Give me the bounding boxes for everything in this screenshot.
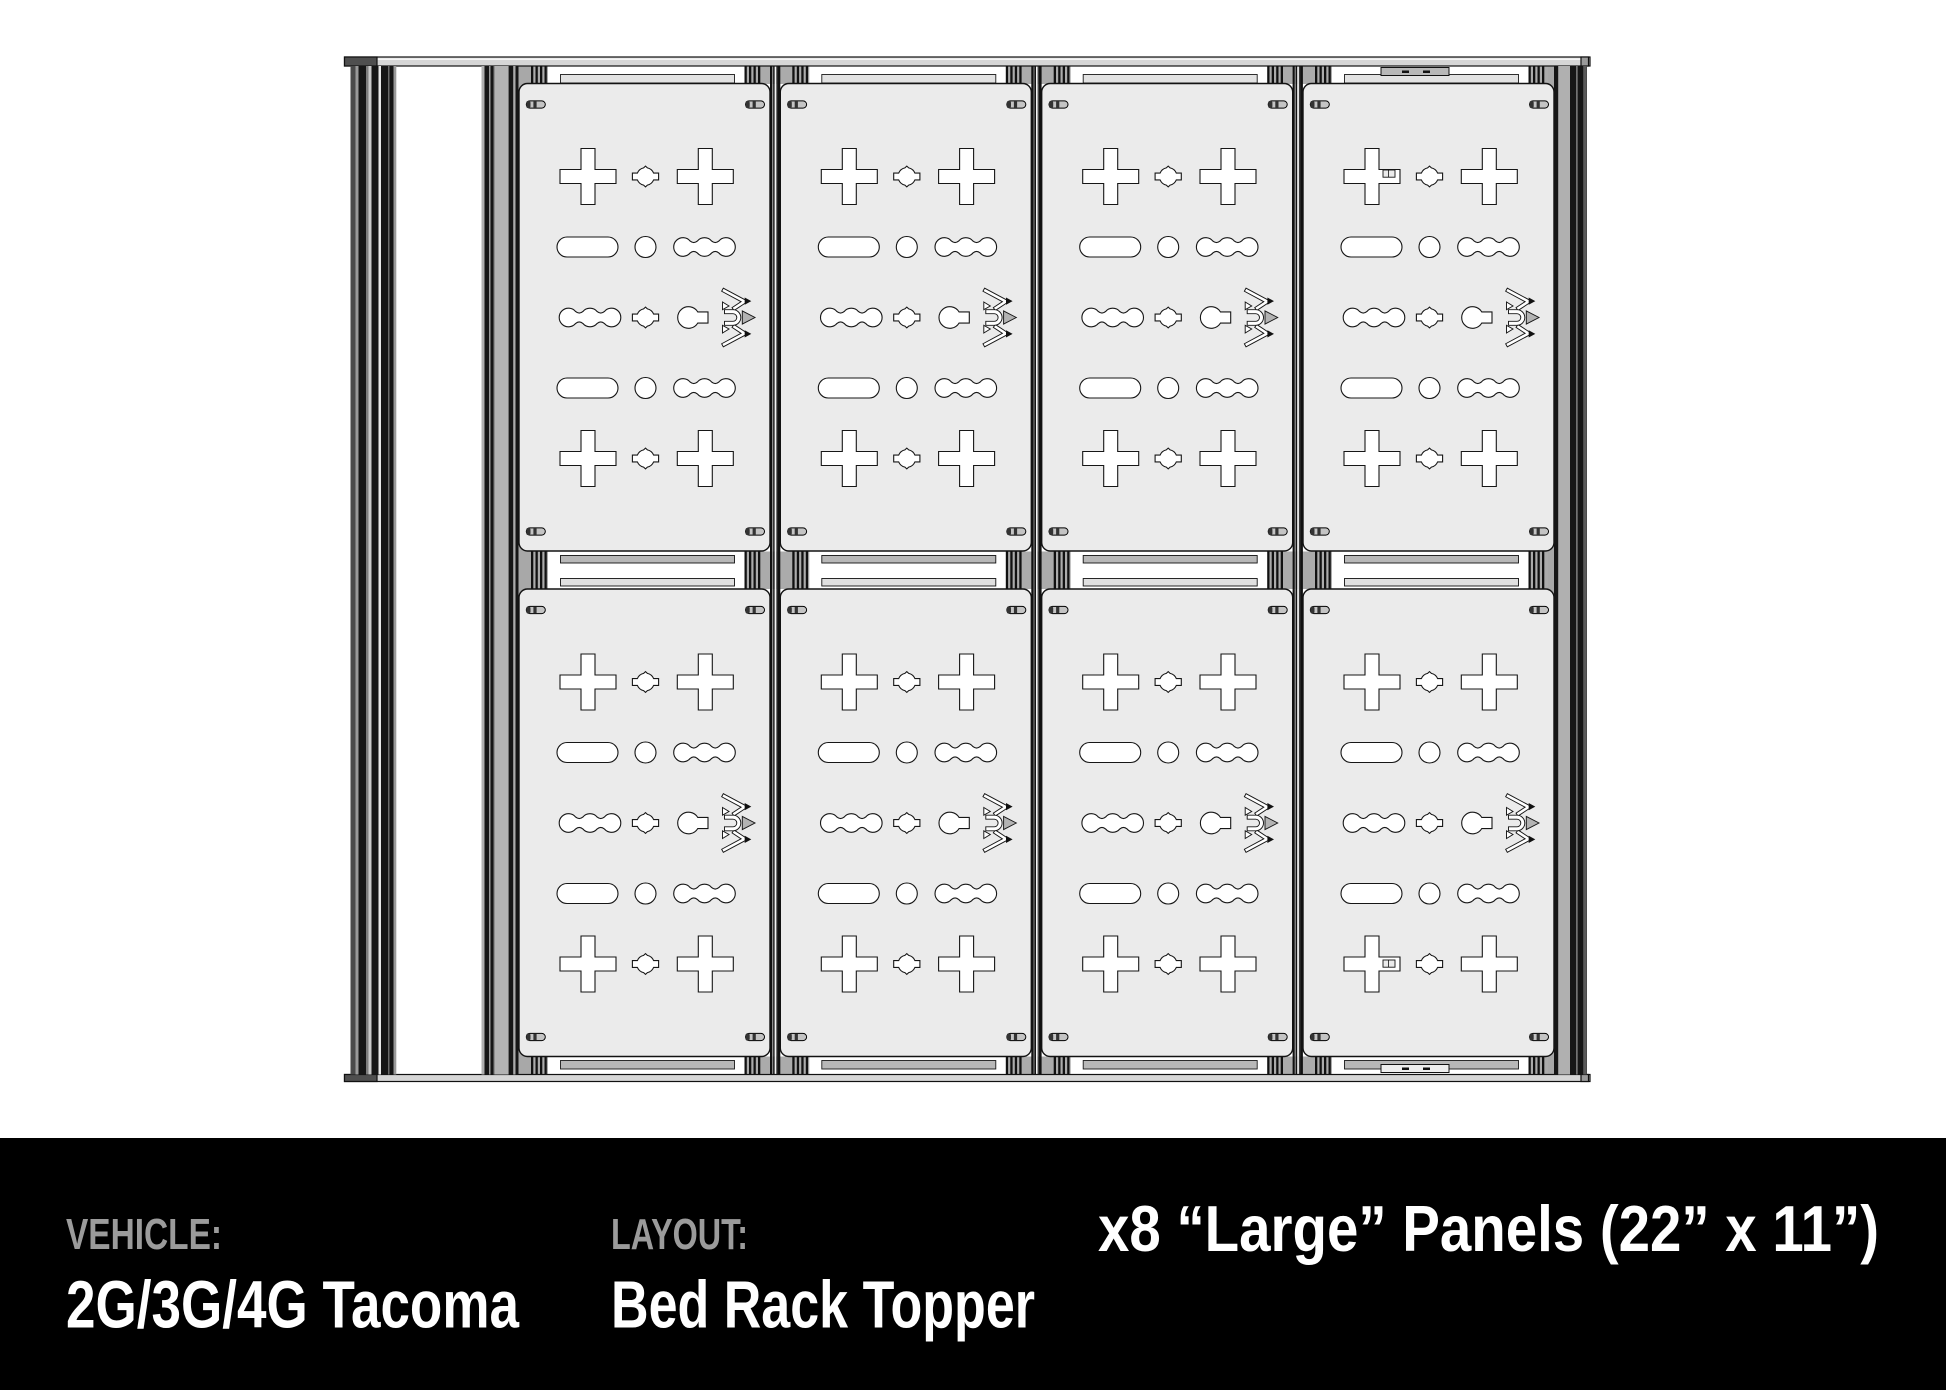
svg-text:2G/3G/4G Tacoma: 2G/3G/4G Tacoma <box>66 1268 520 1343</box>
svg-text:Bed Rack Topper: Bed Rack Topper <box>611 1268 1035 1343</box>
svg-text:x8 “Large” Panels (22” x 11”): x8 “Large” Panels (22” x 11”) <box>1098 1192 1879 1265</box>
svg-text:LAYOUT:: LAYOUT: <box>611 1211 748 1259</box>
svg-text:VEHICLE:: VEHICLE: <box>66 1211 222 1259</box>
